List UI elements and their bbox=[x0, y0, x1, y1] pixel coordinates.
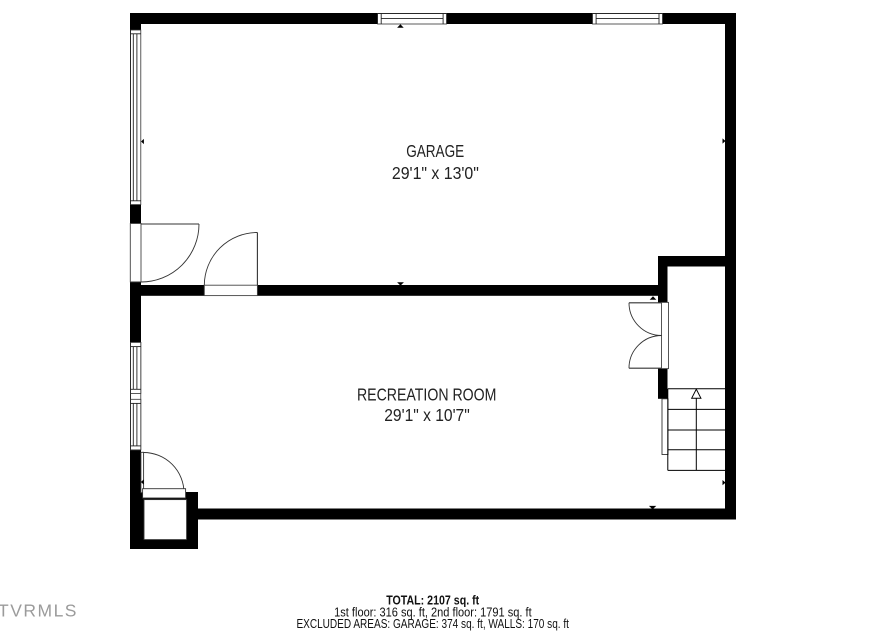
svg-text:RECREATION ROOM: RECREATION ROOM bbox=[357, 385, 497, 405]
svg-text:GARAGE: GARAGE bbox=[406, 141, 464, 161]
svg-text:29'1" x 10'7": 29'1" x 10'7" bbox=[384, 405, 470, 425]
svg-text:29'1" x 13'0": 29'1" x 13'0" bbox=[392, 163, 479, 183]
svg-text:TVRMLS: TVRMLS bbox=[0, 601, 78, 621]
svg-text:EXCLUDED AREAS: GARAGE: 374 sq: EXCLUDED AREAS: GARAGE: 374 sq. ft, WALL… bbox=[296, 616, 569, 631]
